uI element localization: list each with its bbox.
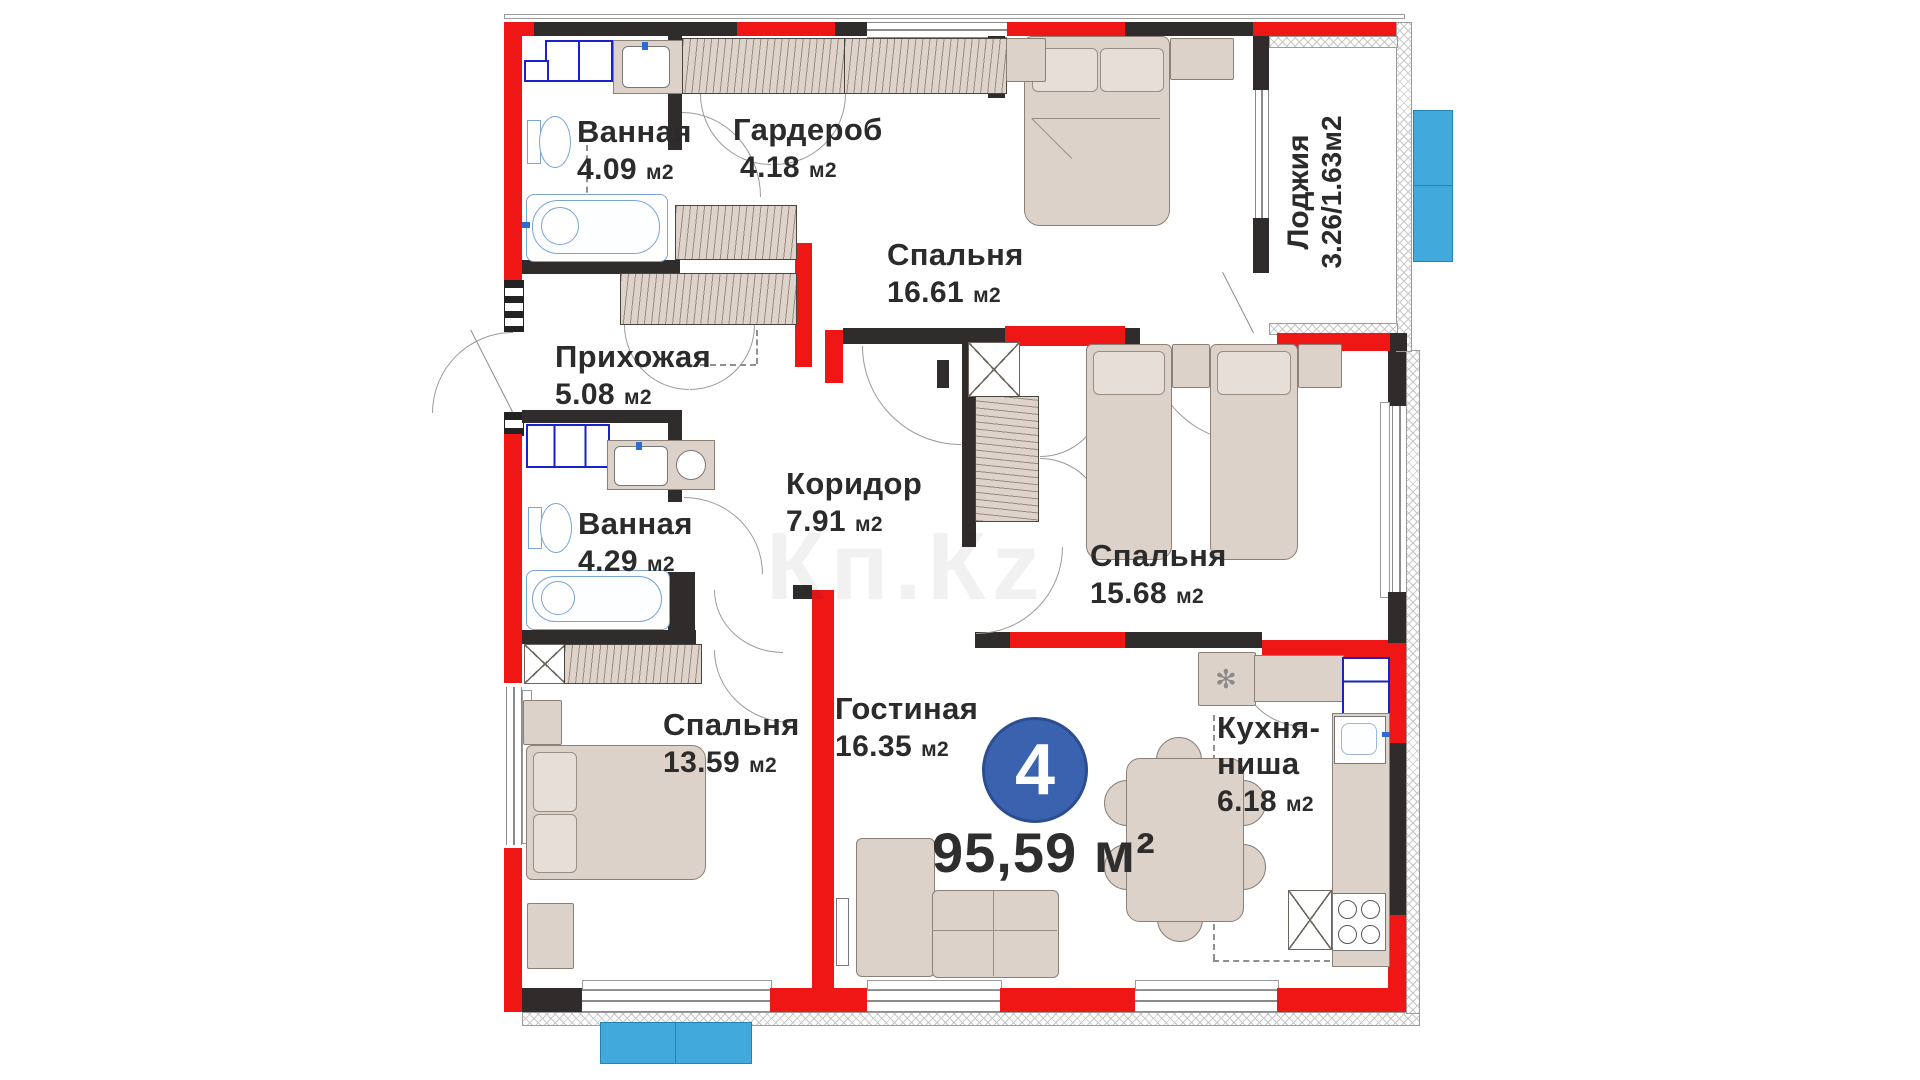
wall-bedroomtop-bottom-dark2 <box>1125 328 1140 344</box>
kitchen-faucet-icon <box>1382 732 1390 737</box>
room-label-wardrobe: Гардероб 4.18м2 <box>733 112 883 188</box>
kitchen-counter-top <box>1254 655 1344 702</box>
wall-top-dark-2 <box>835 22 867 36</box>
nightstand-bedroomleft <box>523 700 562 745</box>
window-bottom-1-sill <box>582 980 772 990</box>
room-label-bedroom-top: Спальня 16.61м2 <box>887 237 1024 313</box>
washing-machine-2 <box>526 424 610 468</box>
wall-left-red-3 <box>504 848 522 1012</box>
bathtub-1-drain <box>541 207 579 245</box>
room-area: 16.61м2 <box>887 276 1024 313</box>
bed-left-pillow-1 <box>533 752 577 812</box>
unit-number-badge: 4 <box>982 717 1088 823</box>
exterior-hatch-right <box>1406 350 1420 1014</box>
sofa-seat-line <box>932 930 1057 931</box>
wall-top-red-3 <box>1007 22 1125 36</box>
entry-door-jamb-bottom <box>504 412 524 436</box>
appliance-round-2 <box>676 450 706 480</box>
window-right-sill <box>1380 402 1390 598</box>
room-label-bedroom-right: Спальня 15.68м2 <box>1090 538 1227 614</box>
room-area: 4.18м2 <box>740 151 883 188</box>
fridge <box>1342 657 1390 717</box>
sofa-cushion-line <box>993 890 994 976</box>
wall-bottom-red-3 <box>1277 988 1405 1012</box>
bed-single-1-pillow <box>1093 351 1165 395</box>
room-name: Ванная <box>578 506 693 542</box>
room-area: 13.59м2 <box>663 746 800 783</box>
unit-number: 4 <box>1015 734 1055 806</box>
room-name: Спальня <box>887 237 1024 273</box>
bathtub-1 <box>526 194 668 262</box>
room-name: Ванная <box>577 114 692 150</box>
wall-top-dark-1 <box>534 22 737 36</box>
wall-right-red-2 <box>1388 915 1406 1012</box>
faucet-2-icon <box>636 442 642 450</box>
stove-burner-3 <box>1338 925 1357 944</box>
bedroomright-door-arc <box>976 547 1063 634</box>
faucet-1-icon <box>642 42 648 50</box>
wall-right-dark-3 <box>1388 743 1406 915</box>
wall-bedroomright-bottom-red <box>1010 632 1125 648</box>
room-area: 16.35м2 <box>835 730 978 767</box>
wall-top-red-loggia <box>1253 22 1403 36</box>
room-area: 4.29м2 <box>578 545 693 582</box>
room-name: Спальня <box>1090 538 1227 574</box>
room-name: Спальня <box>663 707 800 743</box>
room-area: 4.09м2 <box>577 153 692 190</box>
floor-plan: ✻ Ванная 4.09м2 Гардероб 4.18м2 Спальня … <box>0 0 1920 1080</box>
loggia-wall-dark-top <box>1253 36 1269 90</box>
bed-top-pillow-2 <box>1100 48 1164 92</box>
wall-right-dark-2 <box>1388 592 1406 643</box>
exterior-blue-left <box>600 1022 677 1064</box>
room-name: Гостиная <box>835 691 978 727</box>
window-top <box>867 22 1007 38</box>
sink-2 <box>614 446 668 486</box>
nightstand-between-beds <box>1172 344 1210 388</box>
bench-top-right <box>1170 38 1234 80</box>
sofa-main <box>932 890 1059 978</box>
toilet-1-bowl <box>539 116 571 168</box>
room-name-line1: Кухня- <box>1217 710 1320 746</box>
washing-machine-1 <box>545 40 613 82</box>
window-bottom-2-sill <box>867 980 1002 990</box>
stove-burner-2 <box>1361 900 1380 919</box>
bedroomtop-door-arc <box>862 346 961 445</box>
stove-burner-4 <box>1361 925 1380 944</box>
entry-door-arc <box>432 332 513 413</box>
room-name-line2: ниша <box>1217 746 1320 782</box>
cabinet-x-bedroomright <box>968 342 1020 397</box>
room-area: 15.68м2 <box>1090 577 1227 614</box>
wall-corridor-red-stub <box>825 330 843 383</box>
wall-left-red-2 <box>504 434 522 683</box>
wall-bath1-bottom <box>522 260 680 274</box>
room-area: 3.26/1.63м2 <box>1316 42 1348 342</box>
room-label-corridor: Коридор 7.91м2 <box>786 466 922 542</box>
cabinet-bedroomright <box>1298 344 1342 388</box>
room-area: 6.18м2 <box>1217 785 1320 822</box>
dresser-bedroomleft <box>527 903 574 969</box>
room-area: 5.08м2 <box>555 378 711 415</box>
zone-dash-hallway-3 <box>756 330 758 364</box>
window-bottom-1 <box>582 990 770 1012</box>
room-label-hallway: Прихожая 5.08м2 <box>555 339 711 415</box>
room-name: Коридор <box>786 466 922 502</box>
kitchen-cabinet-x <box>1288 890 1332 950</box>
room-name: Гардероб <box>733 112 883 148</box>
exterior-blue-right <box>675 1022 752 1064</box>
sofa-chaise <box>856 838 935 977</box>
tv-unit <box>836 898 849 966</box>
loggia-window <box>1255 90 1269 218</box>
room-name: Лоджия <box>1282 42 1316 342</box>
living-entry-arc <box>714 590 783 653</box>
wall-top-dark-3 <box>1125 22 1253 36</box>
wardrobe-cabinet-2 <box>844 38 1007 94</box>
wall-top-red-2 <box>737 22 835 36</box>
room-label-living: Гостиная 16.35м2 <box>835 691 978 767</box>
entry-door-jamb-top <box>504 280 524 332</box>
balcony-unit-bottom <box>1413 185 1453 262</box>
wall-right-dark-1 <box>1388 351 1406 406</box>
nightstand-top-left <box>1006 38 1046 82</box>
bed-single-2-pillow <box>1217 351 1291 395</box>
kitchen-sink <box>1334 716 1386 764</box>
bed-left-pillow-2 <box>533 814 577 873</box>
room-label-bath1: Ванная 4.09м2 <box>577 114 692 190</box>
wall-right-red-1 <box>1388 643 1406 743</box>
window-bottom-3 <box>1135 990 1277 1012</box>
wall-bottom-red-1 <box>770 988 867 1012</box>
room-label-bedroom-left: Спальня 13.59м2 <box>663 707 800 783</box>
wall-bottom-red-2 <box>1000 988 1135 1012</box>
wardrobe-cabinet-1 <box>682 38 845 94</box>
sink-1 <box>622 46 670 88</box>
wall-bottom-dark-1 <box>522 988 582 1012</box>
loggia-wall-dark-corner <box>1390 333 1407 351</box>
wall-living-divider-cap <box>793 585 812 599</box>
room-label-kitchen: Кухня- ниша 6.18м2 <box>1217 710 1320 822</box>
room-name: Прихожая <box>555 339 711 375</box>
zone-dash-kitchen-2 <box>1213 960 1330 962</box>
wall-living-divider-red <box>812 590 834 988</box>
loggia-outer-wall-hatch <box>1396 22 1412 352</box>
wardrobe-cabinet-3 <box>675 205 797 260</box>
stove-burner-1 <box>1338 900 1357 919</box>
toilet-2-bowl <box>540 503 572 553</box>
wall-left-red-1 <box>504 22 522 280</box>
ventilation-icon: ✻ <box>1215 664 1237 695</box>
bathtub-2-drain <box>541 581 575 615</box>
room-area: 7.91м2 <box>786 505 922 542</box>
kitchen-sink-basin <box>1341 723 1377 755</box>
bed-top-blanket-line <box>1032 118 1160 119</box>
loggia-door-leaf <box>1222 272 1254 333</box>
wall-bedroomtop-bottom-red <box>1005 326 1125 346</box>
hallway-closet <box>620 273 797 325</box>
wall-bath2-bottom <box>522 630 696 644</box>
bath2-door-arc <box>684 497 763 574</box>
exterior-outline <box>504 14 1405 19</box>
window-bottom-2 <box>867 990 1000 1012</box>
wardrobe-bedroomright <box>975 396 1039 522</box>
balcony-unit-top <box>1413 110 1453 187</box>
room-label-loggia: Лоджия 3.26/1.63м2 <box>1282 42 1362 342</box>
loggia-wall-dark-bottom <box>1253 218 1269 273</box>
stove <box>1332 893 1386 951</box>
bathtub-1-faucet-icon <box>522 222 530 228</box>
wardrobe-bedroomleft <box>564 644 702 684</box>
window-left <box>506 687 522 845</box>
room-label-bath2: Ванная 4.29м2 <box>578 506 693 582</box>
total-area: 95,59 м² <box>932 820 1156 885</box>
wall-bedroomright-bottom-dark1 <box>975 632 1010 648</box>
wall-hallway-red <box>795 243 812 367</box>
wall-bedroomright-bottom-dark2 <box>1125 632 1262 648</box>
window-bottom-3-sill <box>1135 980 1279 990</box>
washing-machine-1-side <box>524 60 549 82</box>
cabinet-x-bedroomleft <box>524 644 566 684</box>
